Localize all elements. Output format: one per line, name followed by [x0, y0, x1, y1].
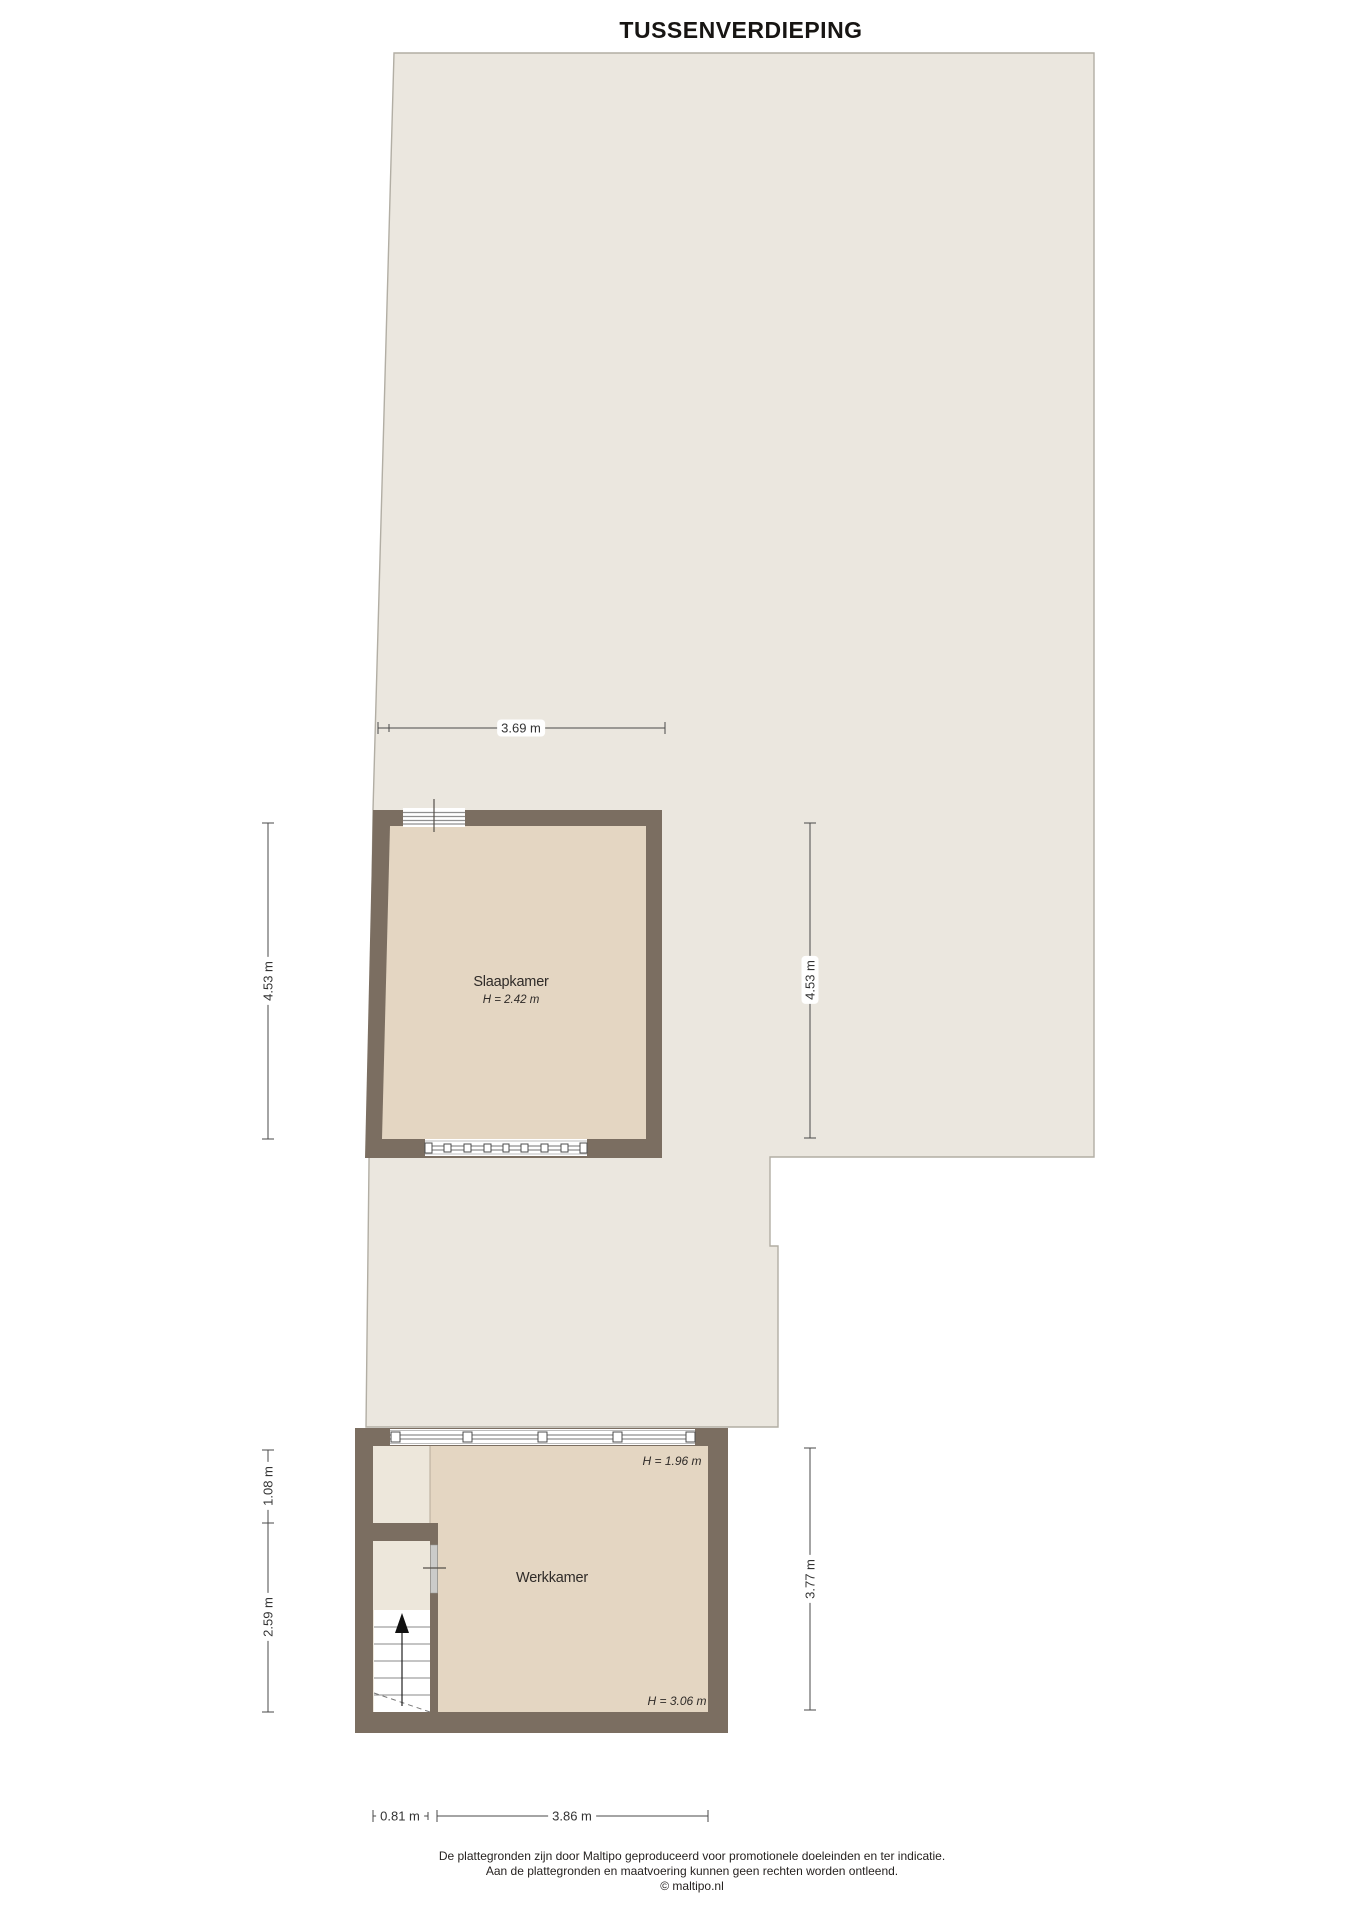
dim-label-height-left: 4.53 m [260, 957, 277, 1005]
footer-line-2: Aan de plattegronden en maatvoering kunn… [439, 1864, 945, 1879]
floorplan-page: TUSSENVERDIEPING [0, 0, 1358, 1920]
footer-line-1: De plattegronden zijn door Maltipo gepro… [439, 1849, 945, 1864]
staircase [374, 1610, 430, 1712]
dim-label-closet-upper: 1.08 m [260, 1462, 277, 1510]
dim-label-werkkamer-height: 3.77 m [802, 1555, 819, 1603]
footer-line-3: © maltipo.nl [439, 1879, 945, 1894]
werkkamer-height-bottom-label: H = 3.06 m [647, 1694, 706, 1708]
closet-door [431, 1545, 438, 1593]
werkkamer-top-window [390, 1429, 695, 1445]
dim-label-werkkamer-width: 3.86 m [548, 1808, 596, 1825]
werkkamer-height-top-label: H = 1.96 m [642, 1454, 701, 1468]
dim-label-closet-lower: 2.59 m [260, 1593, 277, 1641]
dim-label-height-right: 4.53 m [802, 956, 819, 1004]
footer-disclaimer: De plattegronden zijn door Maltipo gepro… [439, 1849, 945, 1894]
slaapkamer-label: Slaapkamer [473, 974, 548, 990]
floor-outline [366, 53, 1094, 1427]
werkkamer-label: Werkkamer [516, 1570, 588, 1586]
dim-label-stairwell-width: 0.81 m [376, 1808, 424, 1825]
dim-label-slaapkamer-width: 3.69 m [497, 720, 545, 737]
floorplan-drawing [0, 0, 1358, 1920]
slaapkamer-height-label: H = 2.42 m [483, 994, 540, 1006]
closet-stub-wall [373, 1523, 438, 1541]
slaapkamer-bottom-window [425, 1139, 587, 1156]
